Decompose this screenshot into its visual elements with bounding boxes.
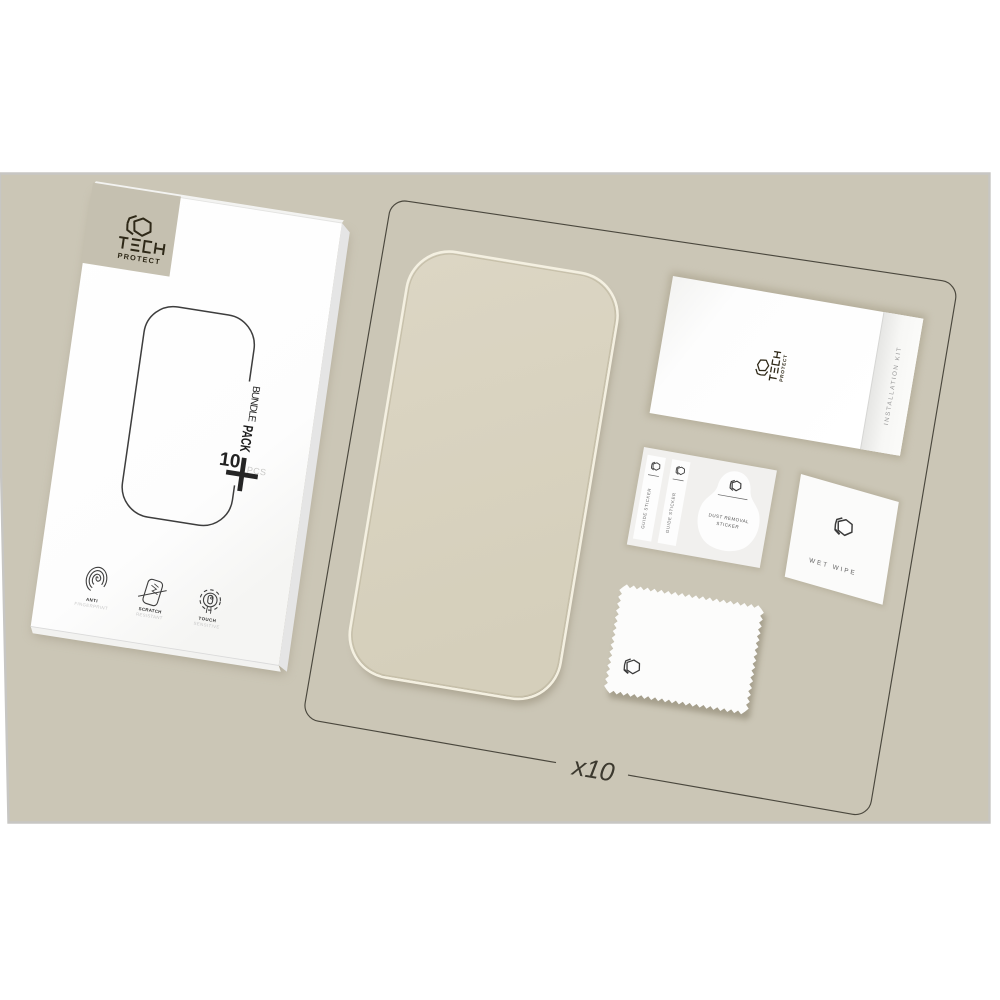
svg-text:10: 10 [218, 449, 242, 473]
